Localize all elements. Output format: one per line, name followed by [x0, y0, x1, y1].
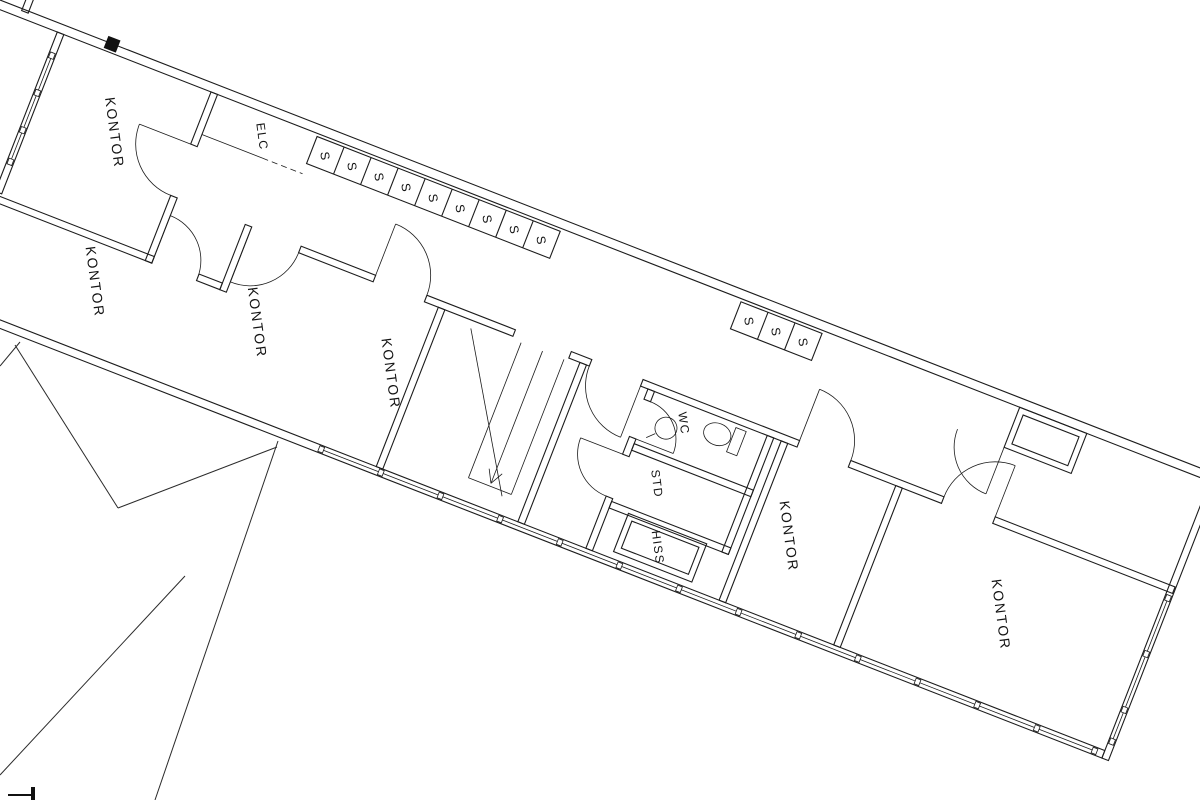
locker-row-2: S S S [730, 302, 822, 361]
locker-label: S [741, 316, 756, 326]
locker-label: S [506, 224, 521, 234]
elc-niche [202, 135, 303, 174]
room-label-kontor-2: KONTOR [83, 245, 108, 318]
door-kontor-2 [153, 216, 215, 278]
exterior-walls [0, 0, 1200, 770]
corridor-closet [1004, 407, 1087, 473]
building: S S S S S S S S S S S S [0, 0, 1200, 770]
site-lines [0, 342, 278, 800]
door-kontor-4 [376, 224, 447, 295]
locker-label: S [533, 235, 548, 245]
doors [75, 112, 1020, 630]
floor-plan: S S S S S S S S S S S S [0, 0, 1200, 800]
door-kontor-5 [800, 389, 871, 460]
east-exterior-wall [1102, 479, 1200, 760]
south-exterior-wall [0, 320, 1105, 758]
room-label-wc: WC [675, 411, 692, 436]
wc-fixtures [646, 398, 746, 470]
north-exterior-wall [0, 0, 1200, 493]
door-kontor-1 [119, 124, 190, 195]
west-windows [7, 52, 55, 166]
corner-symbol [8, 787, 33, 800]
locker-label: S [452, 203, 467, 213]
locker-label: S [317, 151, 332, 161]
room-label-kontor-3: KONTOR [245, 286, 270, 359]
room-label-kontor-4: KONTOR [378, 337, 403, 410]
locker-label: S [371, 172, 386, 182]
locker-label: S [479, 214, 494, 224]
staircase [418, 324, 564, 499]
room-label-std: STD [648, 469, 666, 499]
locker-label: S [795, 337, 810, 347]
door-std [564, 438, 622, 496]
door-kontor-3 [230, 233, 298, 301]
floor-plan-page: S S S S S S S S S S S S [0, 0, 1200, 800]
door-vestibule [569, 366, 640, 437]
adjoining-wing-wall [22, 0, 51, 13]
locker-label: S [398, 182, 413, 192]
east-windows [1109, 594, 1172, 745]
room-label-kontor-5: KONTOR [776, 500, 801, 573]
locker-label: S [768, 327, 783, 337]
room-label-kontor-6: KONTOR [988, 578, 1013, 651]
toilet-icon [700, 417, 747, 456]
room-label-kontor-1: KONTOR [102, 96, 127, 169]
locker-label: S [425, 193, 440, 203]
locker-label: S [344, 161, 359, 171]
locker-row-1: S S S S S S S S S [307, 137, 561, 259]
room-label-elc: ELC [253, 122, 271, 151]
stair-break-line [418, 328, 555, 496]
corridor-wall [299, 246, 1175, 593]
wall-marker-square [104, 36, 121, 53]
